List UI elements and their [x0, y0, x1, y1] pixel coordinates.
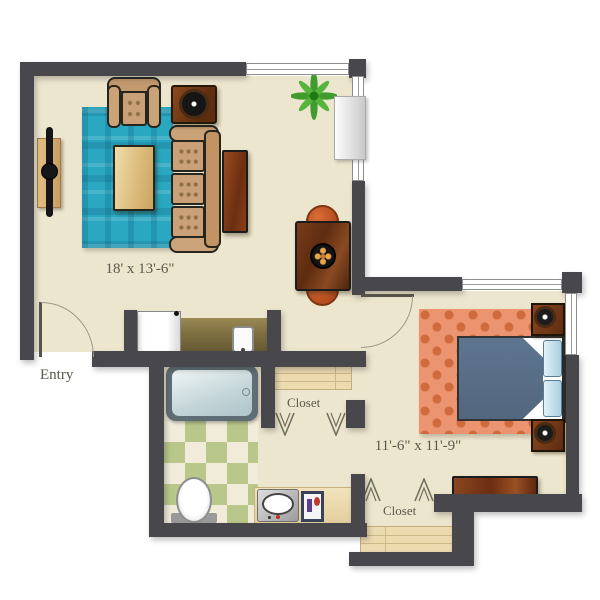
wall	[364, 277, 462, 291]
wall	[158, 523, 367, 537]
floor-plan: 18' x 13'-6" 11'-6" x 11'-9" Entry Close…	[0, 0, 600, 600]
window	[246, 63, 349, 75]
console-cabinet	[334, 96, 366, 160]
wall	[562, 272, 582, 293]
hall-closet-label: Closet	[287, 395, 320, 411]
wall	[261, 352, 275, 428]
bedroom-closet-label: Closet	[383, 503, 416, 519]
wall	[351, 474, 365, 526]
bedroom-dimensions-label: 11'-6" x 11'-9"	[352, 438, 484, 455]
wall	[149, 355, 164, 537]
wall	[20, 62, 34, 360]
wall	[566, 355, 579, 510]
wall	[346, 400, 365, 428]
wall	[20, 62, 246, 76]
wall	[124, 310, 137, 355]
wall	[349, 552, 474, 566]
living-room-dimensions-label: 18' x 13'-6"	[95, 261, 185, 278]
walls	[0, 0, 600, 600]
wall	[267, 310, 281, 356]
window	[462, 279, 562, 290]
entry-label: Entry	[40, 367, 73, 384]
window	[565, 293, 577, 355]
